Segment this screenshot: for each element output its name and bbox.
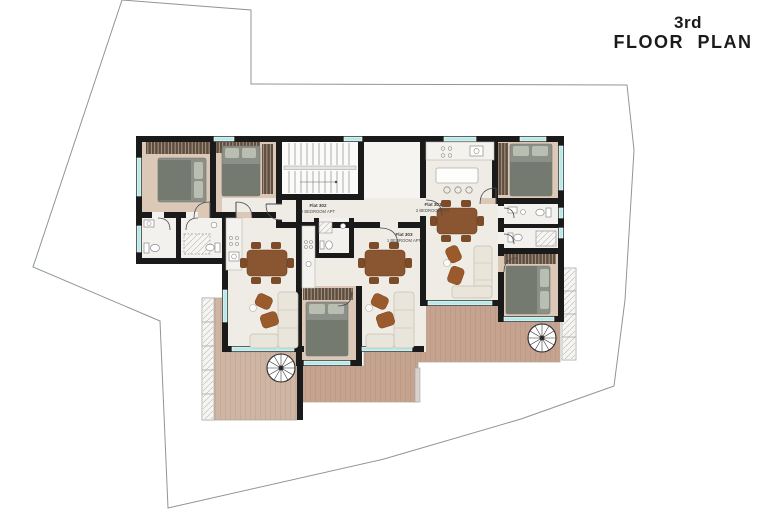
svg-text:Flat 302: Flat 302 [309,203,327,208]
railing-middle [415,368,420,402]
svg-text:2 BEDROOM APT: 2 BEDROOM APT [301,209,336,214]
svg-text:FLOOR PLAN: FLOOR PLAN [614,32,753,52]
kitchen-island [436,168,478,183]
wardrobe-bed1 [146,142,210,154]
railing-right [562,268,576,360]
floor-plan-drawing: Flat 302 2 BEDROOM APT Flat 301 2 BEDROO… [0,0,768,512]
wardrobe-bed2-side [262,144,273,194]
wardrobe-bed4 [303,288,353,300]
planter-left [202,298,214,420]
drawing-title: 3rd FLOOR PLAN [614,13,753,52]
bed-bedroom5 [506,266,550,314]
bed-bedroom1 [158,158,206,202]
spiral-staircase-left [267,354,295,382]
svg-text:3rd: 3rd [674,13,702,32]
svg-text:Flat 301: Flat 301 [424,202,442,207]
svg-text:1 BEDROOM APT: 1 BEDROOM APT [387,238,422,243]
wardrobe-bed3 [498,143,508,195]
floor-plan-page: Flat 302 2 BEDROOM APT Flat 301 2 BEDROO… [0,0,768,512]
staircase-core [282,142,358,194]
spiral-staircase-right [528,324,556,352]
kitchen-flat302 [226,218,242,270]
kitchen-flat303 [302,226,315,288]
svg-text:2 BEDROOM APT: 2 BEDROOM APT [416,208,451,213]
svg-text:Flat 303: Flat 303 [395,232,413,237]
bed-bedroom2 [222,146,260,196]
bed-bedroom3 [510,144,552,196]
bed-bedroom4 [306,302,348,356]
